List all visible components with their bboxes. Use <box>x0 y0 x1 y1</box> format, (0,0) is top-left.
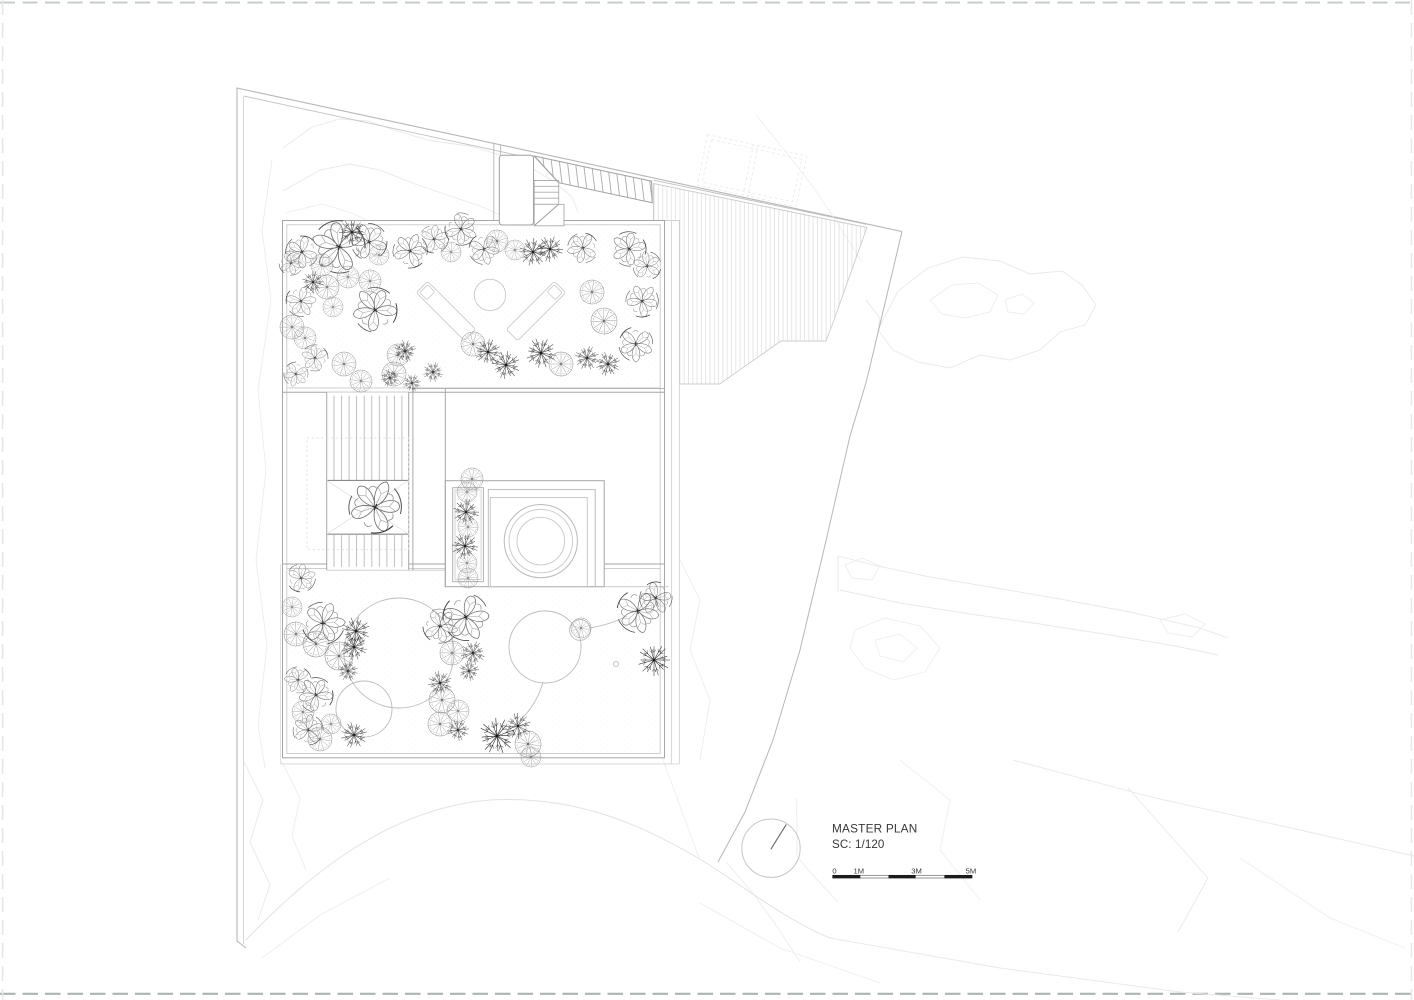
svg-text:3M: 3M <box>911 866 922 875</box>
svg-text:MASTER PLAN: MASTER PLAN <box>832 821 917 835</box>
svg-text:5M: 5M <box>966 866 977 875</box>
svg-text:1M: 1M <box>854 866 865 875</box>
svg-text:0: 0 <box>832 866 836 875</box>
svg-text:SC: 1/120: SC: 1/120 <box>832 838 884 851</box>
